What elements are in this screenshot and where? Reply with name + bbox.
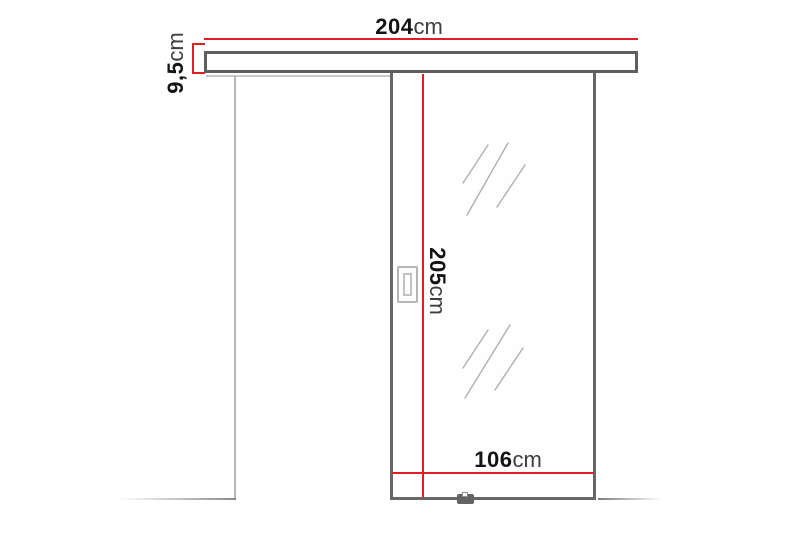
floor-guide-roller: [462, 492, 468, 497]
wall-line: [234, 76, 236, 499]
dimension-diagram: 204cm 9,5cm 205cm 106cm: [0, 0, 800, 533]
floor-line-left: [118, 498, 236, 500]
door-height-unit: cm: [425, 285, 450, 314]
dim-bracket-rail-height: [192, 43, 205, 74]
door-width-label: 106cm: [408, 448, 608, 472]
rail-width-label: 204cm: [309, 15, 509, 39]
door-width-unit: cm: [512, 447, 541, 472]
rail-width-unit: cm: [413, 14, 442, 39]
rail-height-unit: cm: [163, 32, 188, 61]
door-handle: [397, 266, 418, 303]
rail-width-value: 204: [375, 14, 413, 39]
door-handle-recess: [403, 273, 412, 296]
rail-height-label: 9,5cm: [164, 13, 190, 113]
door-width-value: 106: [474, 447, 512, 472]
door-height-value: 205: [425, 247, 450, 285]
dim-line-door-width: [392, 472, 594, 474]
floor-line-right: [598, 498, 662, 500]
rail-height-value: 9,5: [163, 62, 188, 94]
door-panel: [390, 73, 596, 500]
top-rail: [204, 51, 638, 73]
floor-guide: [457, 494, 474, 504]
door-height-label: 205cm: [423, 231, 449, 331]
